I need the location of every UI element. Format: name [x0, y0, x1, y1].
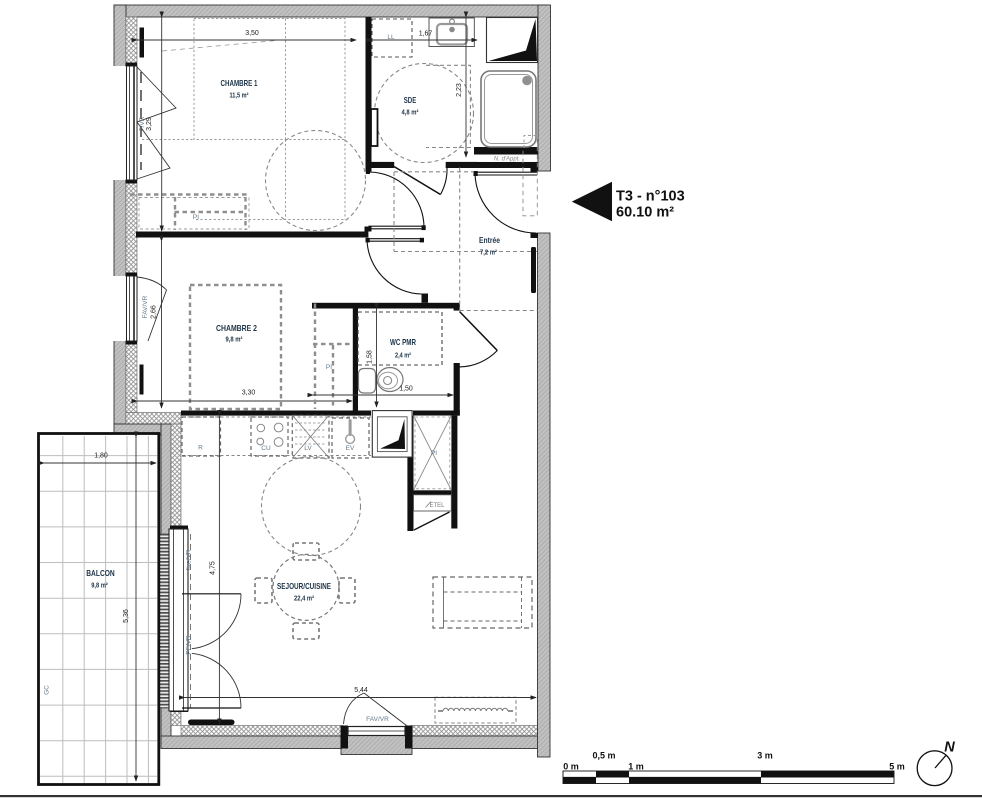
svg-text:PI: PI [193, 214, 199, 221]
svg-text:CHAMBRE 1: CHAMBRE 1 [221, 78, 258, 88]
svg-text:0 m: 0 m [563, 762, 579, 772]
svg-text:4,75: 4,75 [210, 561, 217, 575]
svg-text:3 m: 3 m [757, 751, 773, 761]
svg-text:CHAMBRE 2: CHAMBRE 2 [216, 323, 257, 333]
svg-text:9,8 m²: 9,8 m² [91, 583, 108, 590]
svg-text:ETEL: ETEL [429, 503, 445, 509]
svg-text:3,30: 3,30 [242, 390, 256, 397]
svg-text:LV: LV [304, 445, 312, 452]
svg-text:3,50: 3,50 [245, 30, 259, 37]
svg-text:BALCON: BALCON [86, 568, 115, 578]
svg-text:0,5 m: 0,5 m [592, 751, 615, 761]
svg-text:7,2 m²: 7,2 m² [480, 250, 498, 257]
svg-text:2,23: 2,23 [456, 83, 463, 97]
svg-text:EV: EV [346, 445, 355, 452]
svg-text:SDE: SDE [404, 95, 417, 105]
svg-text:60.10 m²: 60.10 m² [616, 205, 674, 221]
svg-text:4,8 m²: 4,8 m² [402, 110, 420, 117]
svg-text:N: N [944, 740, 955, 756]
svg-text:5 m: 5 m [889, 762, 905, 772]
svg-text:CU: CU [261, 445, 271, 452]
svg-text:11,5 m²: 11,5 m² [230, 93, 250, 100]
svg-text:2,66: 2,66 [151, 305, 158, 319]
svg-text:5,36: 5,36 [123, 609, 130, 623]
svg-text:1,50: 1,50 [399, 386, 413, 393]
svg-text:SEJOUR/CUISINE: SEJOUR/CUISINE [277, 581, 331, 591]
svg-text:PI: PI [431, 450, 437, 457]
svg-text:1,58: 1,58 [367, 350, 374, 364]
svg-text:3,29: 3,29 [146, 117, 153, 131]
svg-text:1,67: 1,67 [419, 31, 433, 38]
svg-text:9,8 m²: 9,8 m² [226, 337, 244, 344]
svg-text:PF/VR: PF/VR [186, 635, 193, 654]
svg-text:FAV/VR: FAV/VR [142, 295, 149, 318]
svg-text:PI: PI [326, 364, 332, 371]
svg-text:WC PMR: WC PMR [390, 337, 416, 347]
svg-text:T3 - n°103: T3 - n°103 [616, 189, 685, 205]
svg-text:1 m: 1 m [628, 762, 644, 772]
svg-text:1,80: 1,80 [94, 453, 108, 460]
svg-text:5,44: 5,44 [354, 687, 368, 694]
svg-text:N. d'Appt.: N. d'Appt. [494, 156, 520, 162]
svg-text:F/VR: F/VR [139, 116, 146, 131]
svg-text:FAV/VR: FAV/VR [366, 716, 389, 723]
svg-text:22,4 m²: 22,4 m² [294, 596, 315, 603]
svg-text:R: R [198, 445, 203, 452]
svg-text:2,4 m²: 2,4 m² [395, 353, 412, 360]
svg-text:Entrée: Entrée [479, 235, 500, 245]
svg-text:fixe/VR: fixe/VR [186, 549, 193, 570]
svg-text:GC: GC [44, 685, 51, 695]
